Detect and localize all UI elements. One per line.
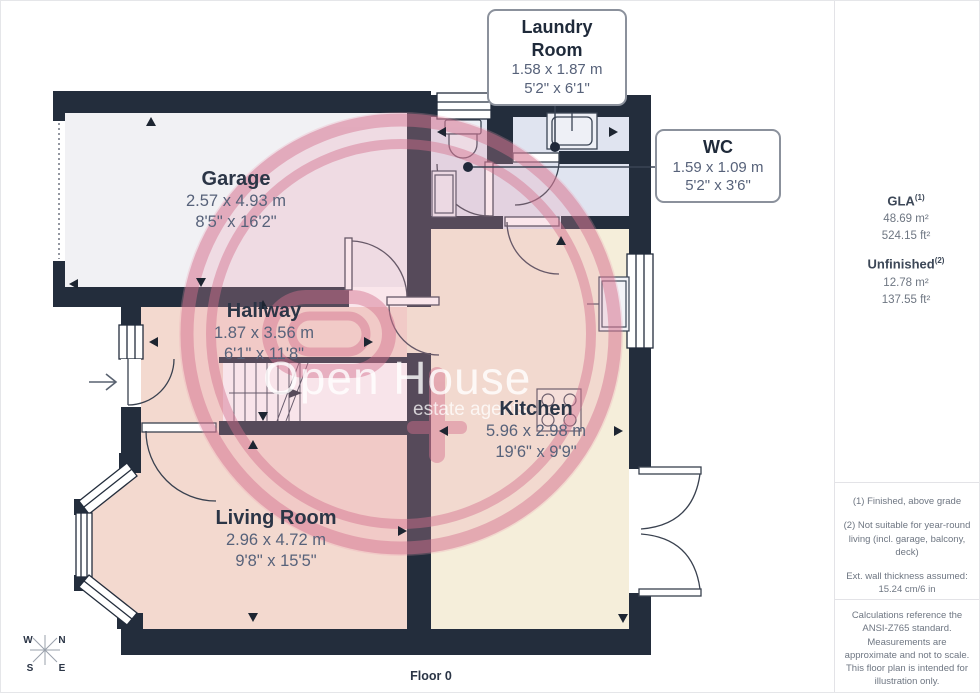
unfinished-ft2: 137.55 ft² [835, 294, 977, 306]
wc-callout: WC 1.59 x 1.09 m 5'2" x 3'6" [655, 129, 781, 203]
compass-w: W [23, 635, 33, 646]
garage-label: Garage 2.57 x 4.93 m 8'5" x 16'2" [131, 167, 341, 232]
area-stats: GLA(1) 48.69 m² 524.15 ft² Unfinished(2)… [835, 179, 977, 306]
hallway-window [119, 325, 143, 359]
living-room-label: Living Room 2.96 x 4.72 m 9'8" x 15'5" [171, 506, 381, 571]
gla-heading: GLA(1) [835, 193, 977, 208]
floor-label: Floor 0 [356, 669, 506, 683]
compass-icon: W N S E [23, 635, 65, 674]
disclaimer-text: Calculations reference the ANSI-Z765 sta… [841, 609, 973, 689]
sidebar-divider-vertical [834, 1, 835, 693]
gla-ft2: 524.15 ft² [835, 230, 977, 242]
compass-e: E [59, 663, 66, 674]
footnote-3: Ext. wall thickness assumed: 15.24 cm/6 … [841, 570, 973, 597]
footnote-2: (2) Not suitable for year-round living (… [841, 519, 973, 559]
gla-m2: 48.69 m² [835, 213, 977, 225]
laundry-window [437, 93, 491, 119]
kitchen-label: Kitchen 5.96 x 2.98 m 19'6" x 9'9" [431, 397, 641, 462]
patio-double-doors [639, 467, 701, 596]
compass-s: S [27, 663, 34, 674]
garage-door [53, 121, 65, 261]
entrance-arrow-icon [89, 374, 116, 390]
footnote-1: (1) Finished, above grade [841, 495, 973, 508]
sidebar-divider-1 [834, 482, 980, 483]
compass-n: N [58, 635, 65, 646]
unfinished-m2: 12.78 m² [835, 277, 977, 289]
floorplan-page: W N S E Open House estate agents Garage … [0, 0, 980, 693]
unfinished-heading: Unfinished(2) [835, 256, 977, 271]
hallway-label: Hallway 1.87 x 3.56 m 6'1" x 11'8" [159, 299, 369, 364]
kitchen-window [627, 254, 653, 348]
disclaimer-block: Calculations reference the ANSI-Z765 sta… [841, 609, 973, 693]
footnotes: (1) Finished, above grade (2) Not suitab… [841, 495, 973, 608]
laundry-room-callout: Laundry Room 1.58 x 1.87 m 5'2" x 6'1" [487, 9, 627, 106]
